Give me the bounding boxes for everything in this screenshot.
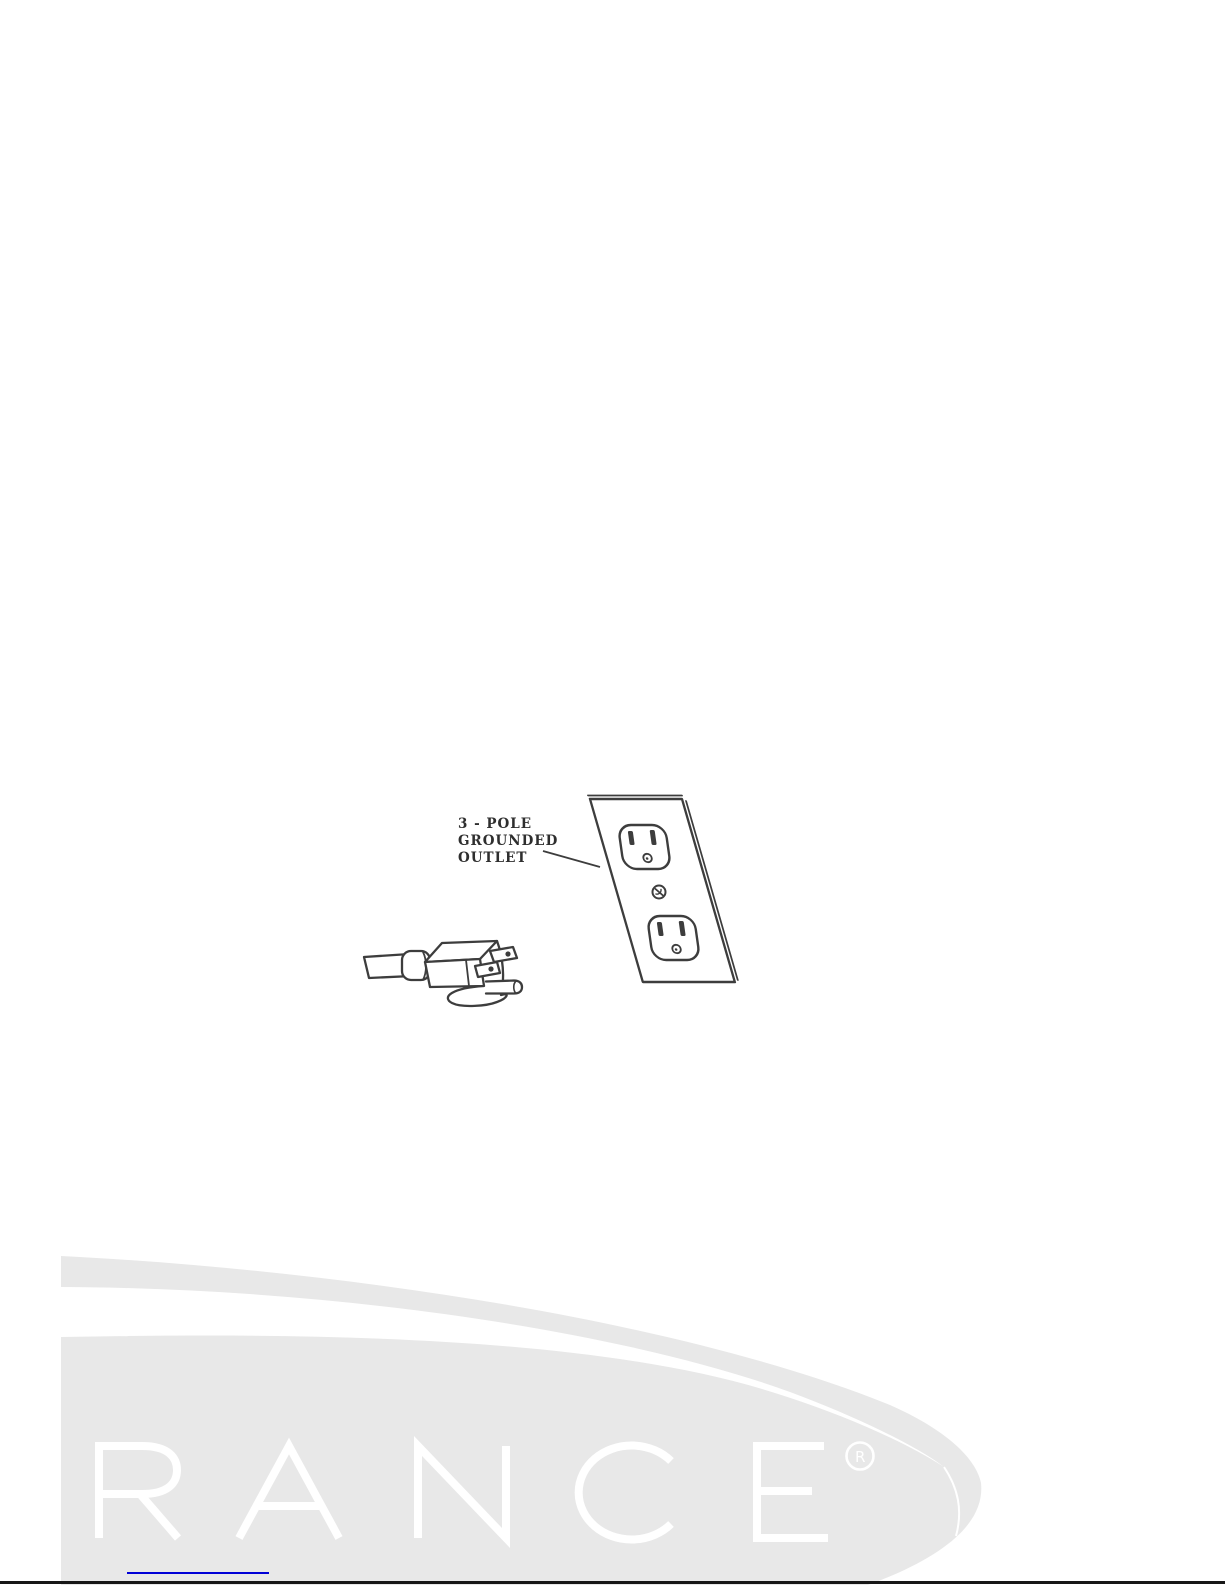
figure-label-line2: GROUNDED: [458, 833, 558, 849]
plug-body-front-face: [425, 959, 484, 987]
bottom-page-rule: [0, 1581, 1225, 1584]
figure-label-line3: OUTLET: [458, 850, 527, 866]
plug-drawing: [364, 941, 522, 1006]
figure-label-line1: 3 - POLE: [458, 816, 532, 832]
plate-screw: [653, 886, 666, 899]
label-leader-line: [543, 851, 600, 867]
upper-receptacle: [618, 825, 671, 869]
plug-body-top-face: [425, 941, 497, 962]
footer-link[interactable]: [127, 1572, 269, 1574]
plug-neutral-blade: [490, 947, 517, 962]
document-page: R 3 - POLE GROUNDED OUTLET: [0, 0, 1225, 1585]
outlet-drawing: [588, 796, 738, 983]
figure-label: 3 - POLE GROUNDED OUTLET: [458, 816, 558, 866]
lower-receptacle: [647, 916, 700, 960]
plug-ground-pin: [486, 981, 522, 994]
plug-hot-blade: [475, 962, 500, 977]
outlet-figure: 3 - POLE GROUNDED OUTLET: [0, 0, 1225, 1585]
